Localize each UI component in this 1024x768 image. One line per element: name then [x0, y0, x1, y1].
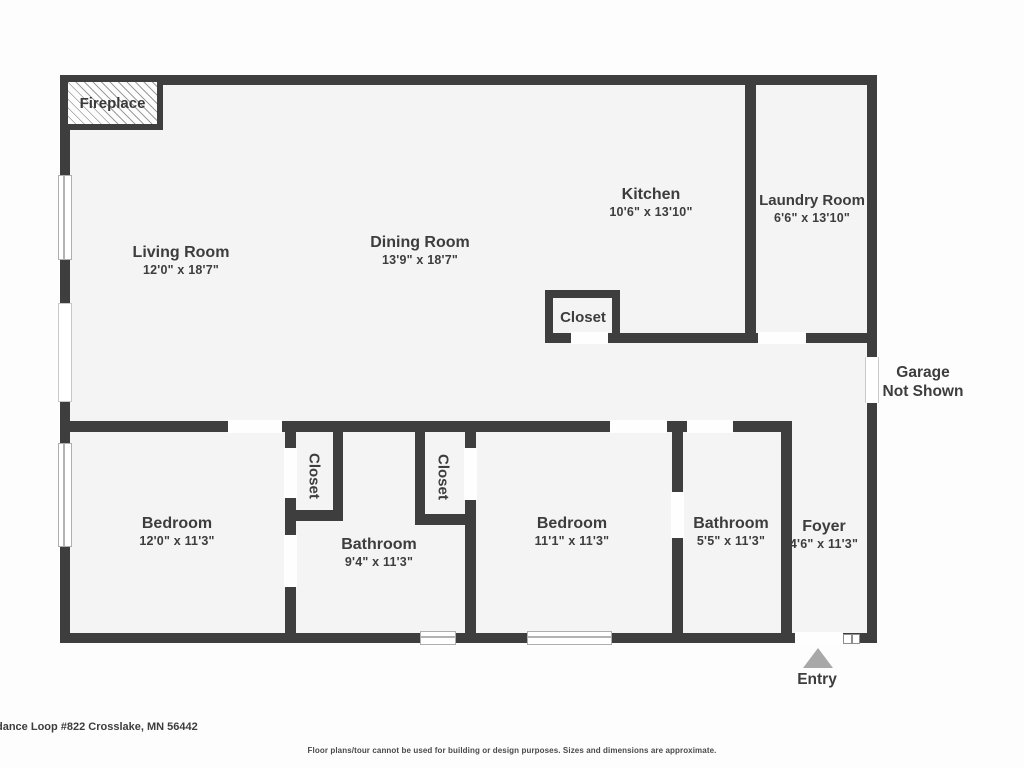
fireplace-symbol: Fireplace	[62, 76, 163, 130]
room-name: Closet	[548, 309, 618, 328]
room-name: Kitchen	[571, 185, 731, 205]
window-symbol-living-2	[58, 303, 72, 402]
room-label-closet1: Closet	[299, 436, 329, 516]
door-opening-bedroom1	[228, 420, 282, 433]
room-name: Bedroom	[97, 514, 257, 534]
room-label-laundry: Laundry Room 6'6" x 13'10"	[742, 192, 882, 226]
room-name: Living Room	[101, 243, 261, 263]
fireplace-label: Fireplace	[80, 95, 146, 112]
door-opening-bathroom2	[687, 420, 733, 433]
garage-note: Garage Not Shown	[862, 363, 984, 402]
entry-door-opening	[795, 632, 843, 644]
door-opening-hall-closet	[571, 332, 608, 344]
room-name: Bathroom	[299, 535, 459, 555]
room-label-foyer: Foyer 4'6" x 11'3"	[774, 517, 874, 553]
room-dims: 9'4" x 11'3"	[299, 555, 459, 571]
window-symbol-bedroom1	[58, 443, 72, 547]
entry-label: Entry	[777, 671, 857, 689]
room-name: Bedroom	[492, 514, 652, 534]
floorplan-page: { "title": "Floor plan", "colors": { "wa…	[0, 0, 1024, 768]
room-name: Dining Room	[340, 233, 500, 253]
door-opening-bedroom2	[610, 420, 667, 433]
address-text: dance Loop #822 Crosslake, MN 56442	[0, 721, 198, 733]
garage-note-line2: Not Shown	[862, 382, 984, 401]
room-label-dining: Dining Room 13'9" x 18'7"	[340, 233, 500, 269]
room-dims: 4'6" x 11'3"	[774, 537, 874, 553]
disclaimer-text: Floor plans/tour cannot be used for buil…	[0, 746, 1024, 755]
room-dims: 12'0" x 11'3"	[97, 534, 257, 550]
room-name: Foyer	[774, 517, 874, 537]
room-label-kitchen: Kitchen 10'6" x 13'10"	[571, 185, 731, 221]
door-opening-laundry	[758, 332, 806, 344]
wall-closet2-left	[415, 421, 425, 525]
window-symbol-bedroom2	[527, 631, 612, 645]
room-label-hall-closet: Closet	[548, 309, 618, 328]
room-name: Laundry Room	[742, 192, 882, 211]
room-name: Closet	[306, 453, 323, 499]
room-dims: 10'6" x 13'10"	[571, 205, 731, 221]
wall-closet1-right	[333, 421, 343, 521]
door-opening-closet1	[284, 448, 297, 498]
wall-hallcloset-top	[545, 290, 620, 298]
room-name: Closet	[435, 454, 452, 500]
window-symbol-bathroom1	[420, 631, 456, 645]
room-dims: 13'9" x 18'7"	[340, 253, 500, 269]
room-label-bedroom2: Bedroom 11'1" x 11'3"	[492, 514, 652, 550]
door-opening-bathroom1	[284, 535, 297, 587]
room-label-living: Living Room 12'0" x 18'7"	[101, 243, 261, 279]
room-dims: 12'0" x 18'7"	[101, 263, 261, 279]
window-symbol-living	[58, 175, 72, 260]
room-label-bedroom1: Bedroom 12'0" x 11'3"	[97, 514, 257, 550]
room-dims: 6'6" x 13'10"	[742, 211, 882, 227]
room-label-bathroom1: Bathroom 9'4" x 11'3"	[299, 535, 459, 571]
entry-door-symbol	[843, 634, 860, 644]
garage-note-line1: Garage	[862, 363, 984, 382]
entry-arrow-icon	[803, 648, 833, 668]
room-label-closet2: Closet	[428, 437, 458, 517]
room-dims: 11'1" x 11'3"	[492, 534, 652, 550]
door-opening-closet2	[464, 448, 477, 500]
